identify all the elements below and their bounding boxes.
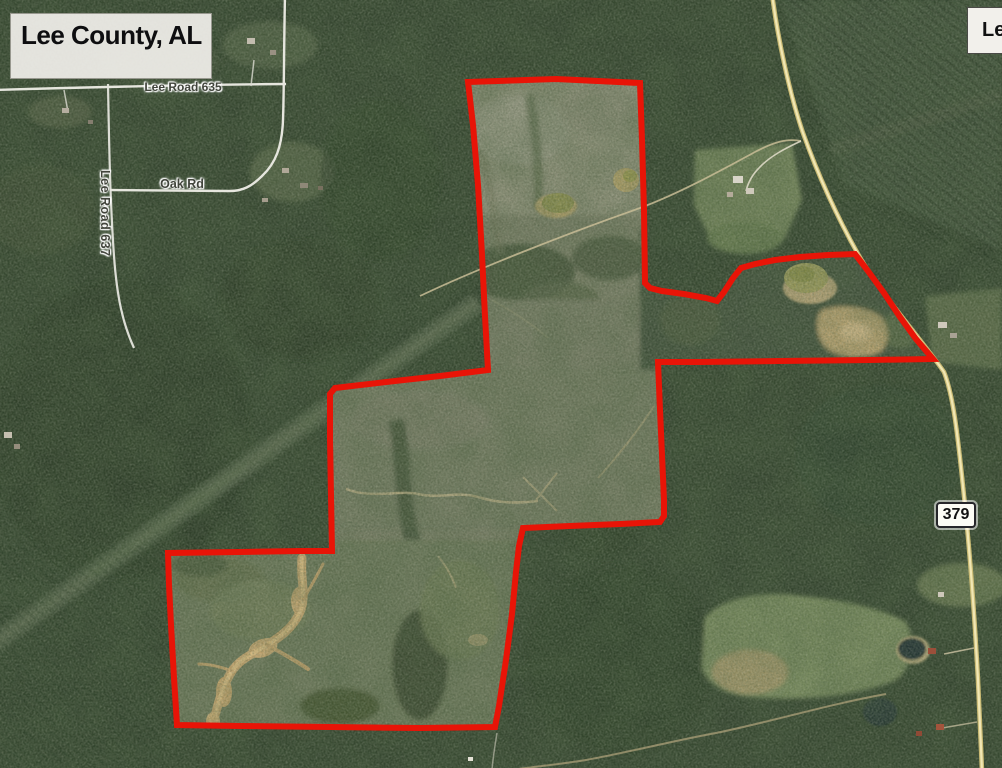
texture-speckle-light — [0, 0, 1002, 768]
road-label-lee-road-637: Lee Road 637 — [99, 170, 112, 257]
legend-box: Legend — [967, 7, 1002, 54]
map-screenshot: { "map": { "county_label": "Lee County, … — [0, 0, 1002, 768]
farm-buildings — [733, 176, 743, 183]
satellite-map — [0, 0, 1002, 768]
road-label-lee-road-635: Lee Road 635 — [133, 81, 233, 93]
county-label-box: Lee County, AL — [10, 13, 212, 79]
route-shield-379: 379 — [936, 502, 976, 528]
road-label-oak-rd: Oak Rd — [152, 178, 212, 191]
